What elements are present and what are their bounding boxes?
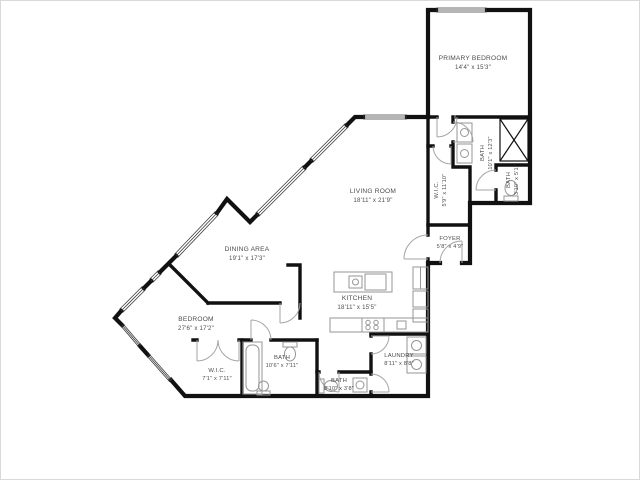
dims-bath-primary: 10'1" x 12'3": [488, 136, 494, 169]
label-bath-hall: BATH: [331, 378, 347, 384]
label-bath-wc: BATH: [506, 172, 512, 188]
door-laundry-upper: [371, 336, 389, 354]
label-group-bath-primary: BATH 10'1" x 12'3": [480, 136, 494, 169]
dims-wic-primary: 5'9" x 11'10": [442, 174, 448, 207]
label-wic-primary: W.I.C.: [434, 181, 440, 198]
dims-laundry: 8'11" x 8'8": [384, 361, 414, 367]
label-laundry: LAUNDRY: [384, 353, 413, 359]
window-dining-diagonal-upper: [174, 211, 218, 257]
wall-kitchen-west: [288, 265, 300, 318]
exterior-wall-livingroom-diagonal-chunks: [305, 117, 428, 167]
label-dining-area: DINING AREA: [225, 246, 270, 253]
label-wic-second: W.I.C.: [208, 368, 225, 374]
dims-kitchen: 18'11" x 15'5": [337, 304, 376, 311]
label-primary-bedroom: PRIMARY BEDROOM: [439, 55, 508, 62]
dims-foyer: 5'8" x 4'9": [437, 244, 464, 250]
label-bath-primary: BATH: [480, 145, 486, 161]
label-foyer: FOYER: [439, 236, 460, 242]
window-livingroom-top: [363, 115, 407, 119]
label-living-room: LIVING ROOM: [350, 188, 396, 195]
label-group-bath-wc: BATH 3'10" x 5'1": [506, 165, 520, 195]
window-livingroom-diagonal-lower: [255, 165, 306, 216]
dims-bath-hall: 8'10" x 3'8": [324, 386, 354, 392]
exterior-wall-notch: [217, 199, 257, 222]
wall-bedroom-diagonal: [170, 265, 208, 303]
exterior-wall-southwest-corner: [115, 311, 148, 355]
kitchen-island-icon: [334, 272, 392, 292]
window-primary-bedroom-top: [436, 8, 487, 12]
door-bath-primary: [453, 122, 473, 142]
door-wic2-left: [197, 340, 218, 361]
sink-main-bath-icon: [257, 381, 270, 395]
floor-plan-page: PRIMARY BEDROOM 14'4" x 15'3" LIVING ROO…: [0, 0, 640, 480]
window-bedroom-diagonal-sw1: [121, 324, 141, 347]
door-bath-main: [251, 320, 271, 340]
dims-living-room: 18'11" x 21'9": [353, 197, 392, 204]
fridge-pantry-icon: [413, 267, 428, 322]
label-bath-main: BATH: [274, 355, 290, 361]
door-wic-primary: [433, 146, 451, 164]
washer-icon: [407, 337, 426, 354]
dims-primary-bedroom: 14'4" x 15'3": [455, 64, 491, 71]
dims-dining-area: 19'1" x 17'3": [229, 255, 265, 262]
dims-bedroom: 27'6" x 17'2": [178, 325, 214, 332]
dims-bath-wc: 3'10" x 5'1": [514, 165, 520, 195]
shower-icon: [500, 119, 528, 161]
door-bedroom: [280, 303, 300, 323]
label-bedroom: BEDROOM: [178, 316, 213, 323]
door-wic2-right: [218, 340, 239, 361]
wall-water-closet: [496, 165, 530, 203]
dims-wic-second: 7'1" x 7'11": [202, 376, 232, 382]
window-dining-diagonal-small: [149, 270, 161, 282]
dims-bath-main: 10'6" x 7'11": [266, 363, 299, 369]
label-group-wic-primary: W.I.C. 5'9" x 11'10": [434, 174, 448, 207]
sink-hall-bath-icon: [353, 378, 367, 392]
window-livingroom-diagonal-upper: [309, 123, 348, 162]
floor-plan-svg: PRIMARY BEDROOM 14'4" x 15'3" LIVING ROO…: [0, 0, 640, 480]
door-laundry-lower: [371, 374, 389, 392]
label-kitchen: KITCHEN: [342, 295, 372, 302]
double-vanity-icon: [457, 123, 472, 163]
windows: [119, 8, 487, 382]
window-bedroom-diagonal-sw2: [147, 354, 172, 382]
door-foyer-living: [404, 235, 428, 259]
bathtub-icon: [243, 342, 262, 394]
window-bedroom-diagonal-upper: [119, 286, 145, 312]
door-water-closet: [476, 170, 496, 190]
